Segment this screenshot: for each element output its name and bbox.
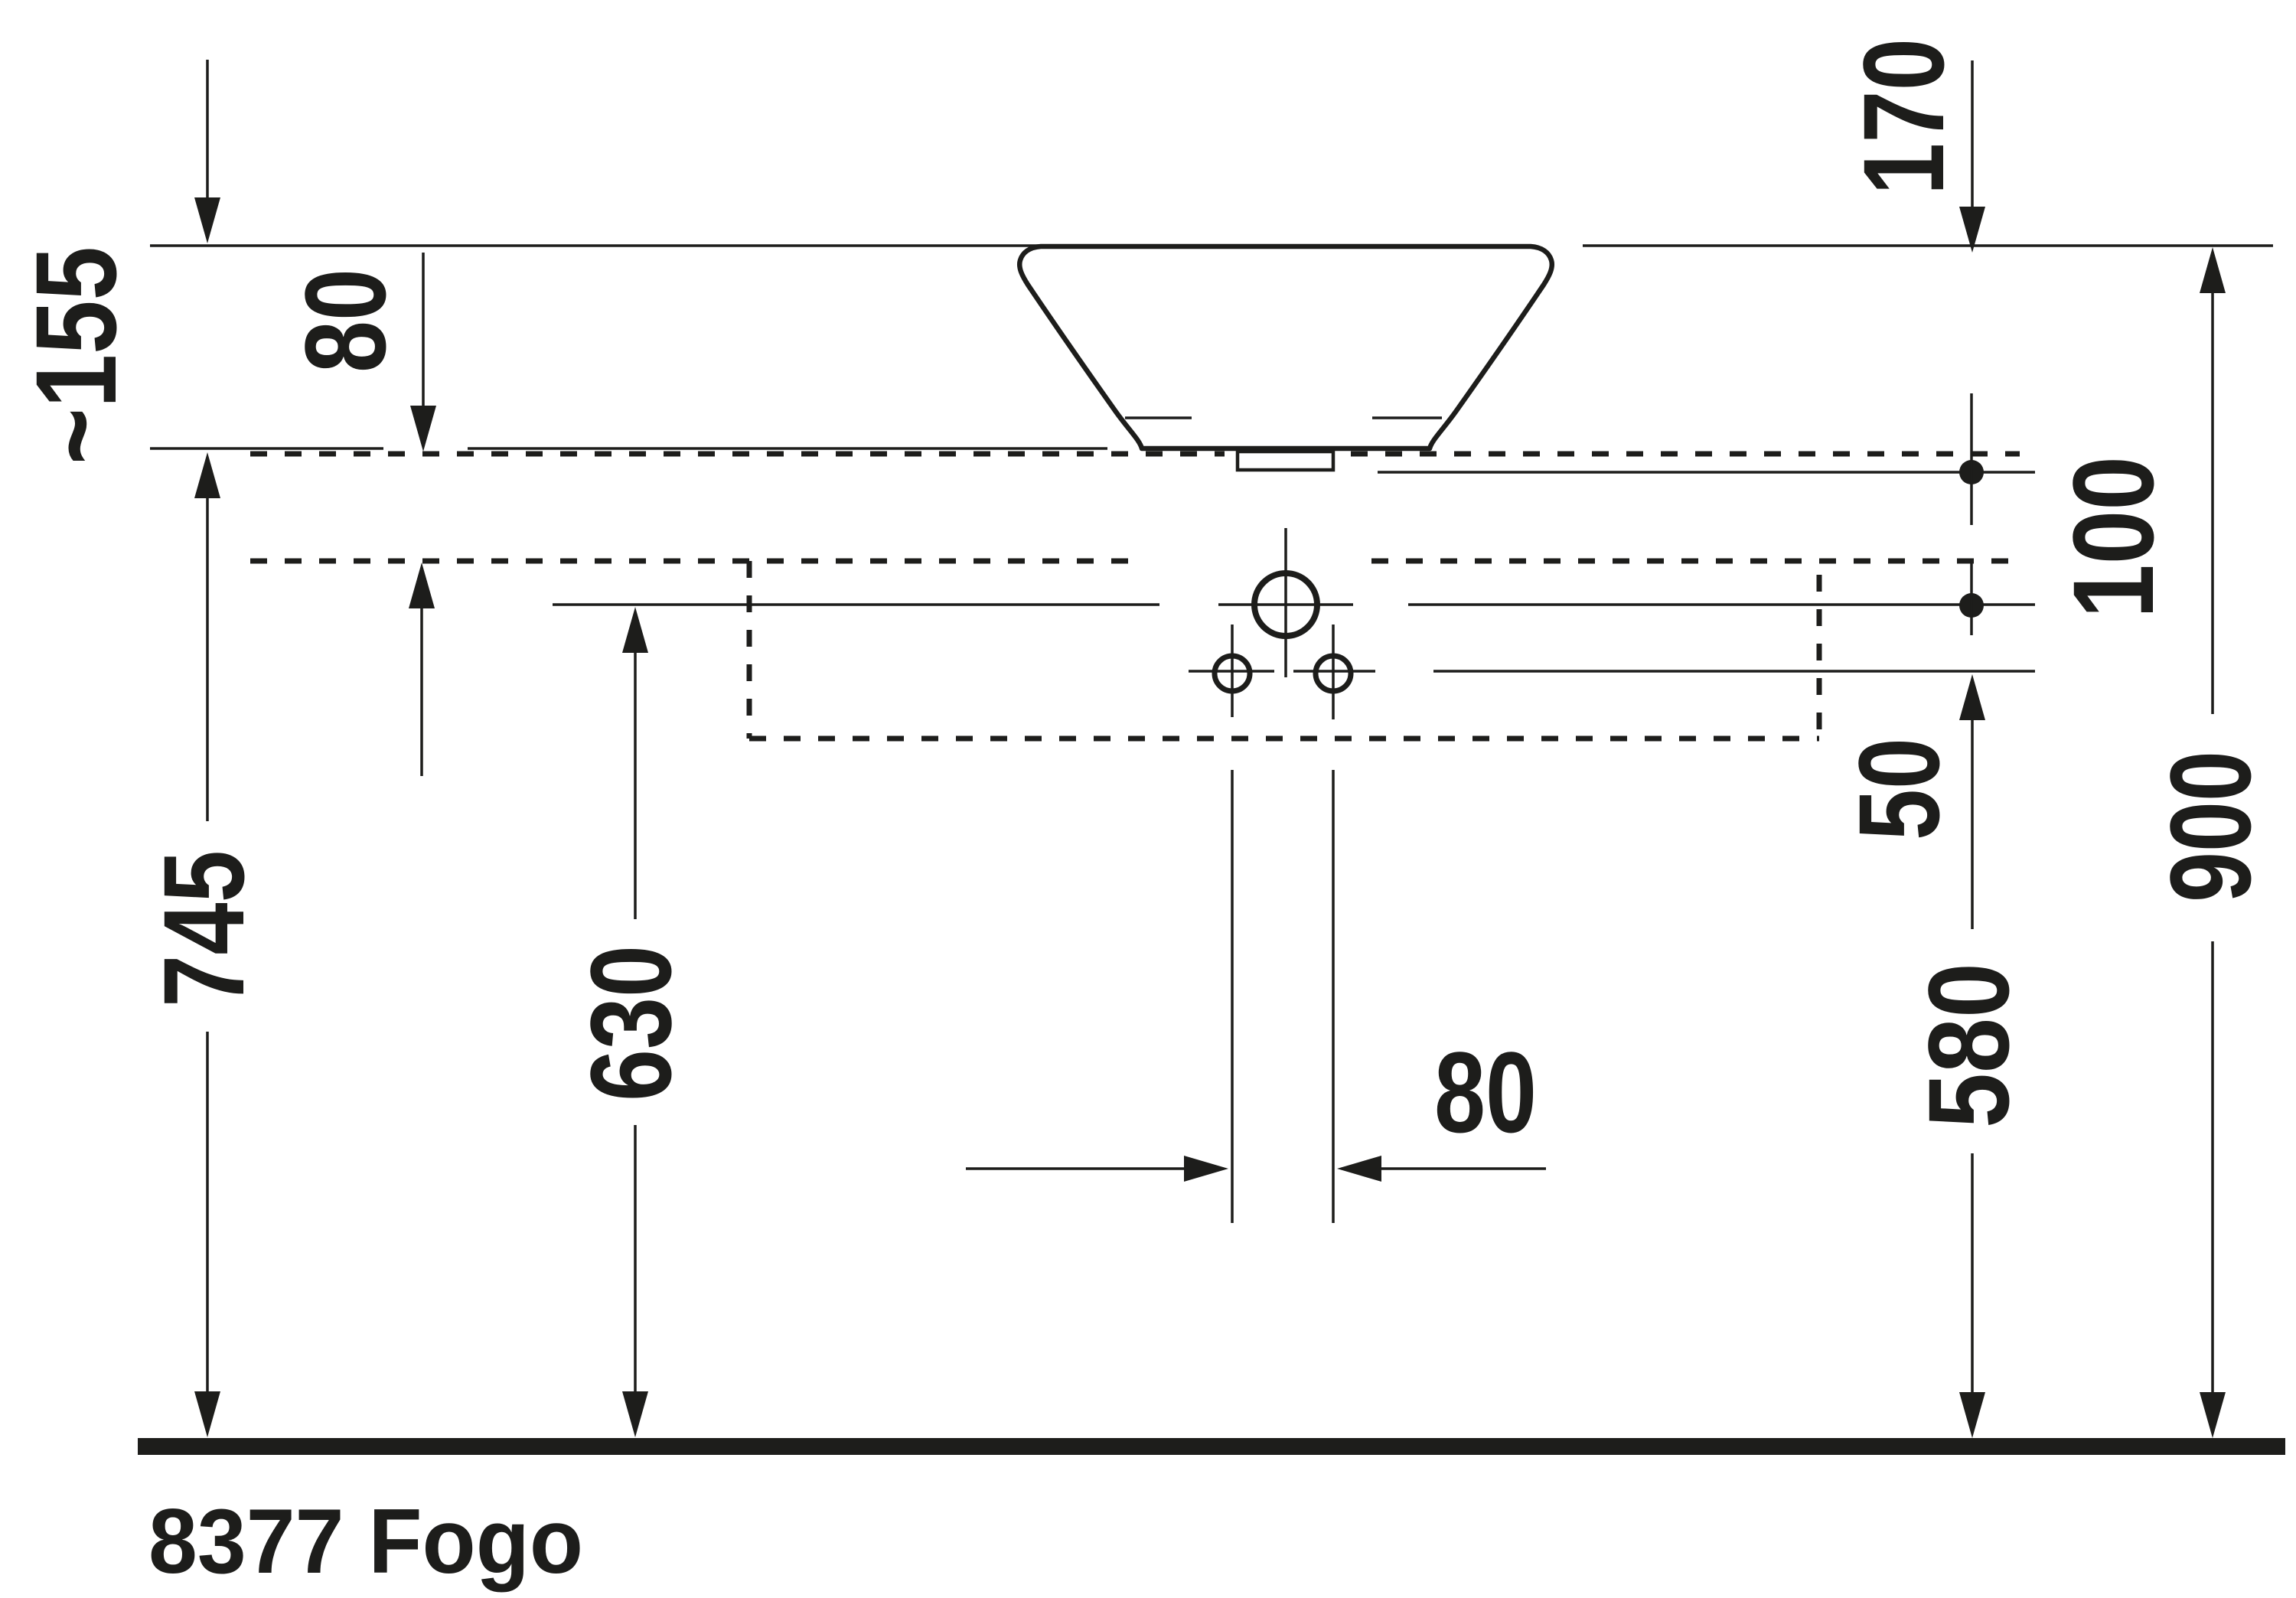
svg-text:630: 630 [566,945,695,1101]
svg-text:745: 745 [139,850,268,1007]
svg-text:50: 50 [1835,738,1963,840]
svg-text:80: 80 [1434,1028,1537,1156]
svg-text:8377 Fogo: 8377 Fogo [148,1490,583,1593]
svg-text:80: 80 [281,269,409,373]
svg-text:~155: ~155 [11,246,140,465]
svg-text:900: 900 [2146,751,2275,902]
svg-text:100: 100 [2049,456,2177,618]
svg-text:170: 170 [1839,38,1968,195]
svg-text:580: 580 [1904,963,2033,1128]
